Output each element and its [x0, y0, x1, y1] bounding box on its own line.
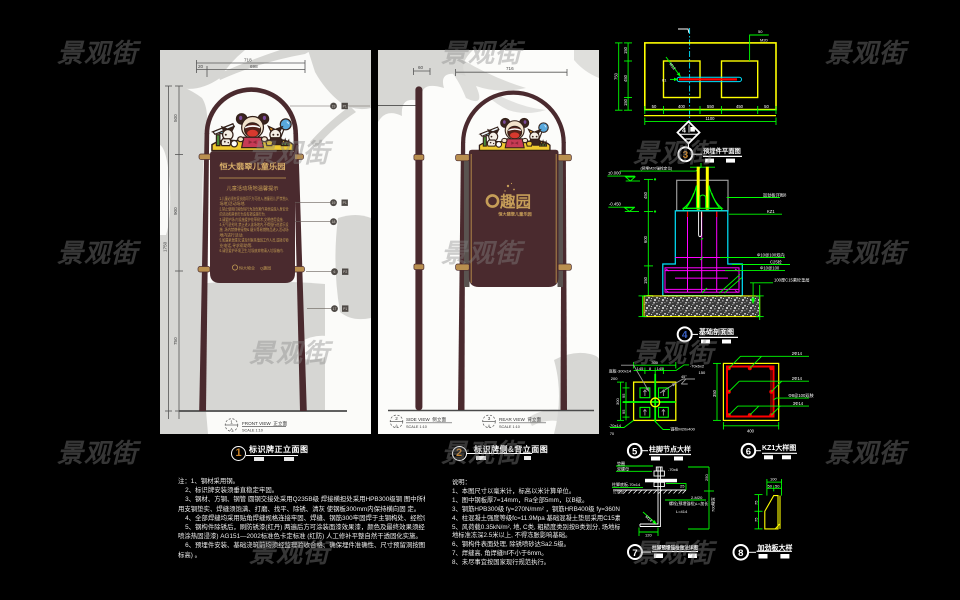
svg-text:50: 50 — [764, 104, 769, 109]
svg-text:45°: 45° — [681, 375, 687, 379]
svg-text:600: 600 — [643, 235, 648, 243]
svg-text:P1: P1 — [343, 201, 347, 205]
svg-text:1: 1 — [230, 420, 233, 425]
svg-text:20: 20 — [198, 64, 204, 69]
svg-text:2: 2 — [395, 416, 398, 421]
svg-text:3.请爱护场.内设施爱护花草树木,文明使用设施.: 3.请爱护场.内设施爱护花草树木,文明使用设施. — [220, 216, 284, 222]
svg-text:750: 750 — [614, 72, 619, 80]
svg-text:750: 750 — [173, 337, 178, 345]
svg-text:-70x6: -70x6 — [668, 467, 679, 472]
svg-text:50: 50 — [652, 104, 657, 109]
svg-text:150: 150 — [623, 98, 628, 106]
svg-text:70: 70 — [610, 431, 615, 436]
svg-text:450: 450 — [623, 74, 628, 82]
svg-text:19: 19 — [332, 201, 336, 205]
svg-text:95: 95 — [621, 409, 626, 414]
svg-text:SCALE 1:10: SCALE 1:10 — [406, 425, 427, 429]
svg-text:KZ1大样图: KZ1大样图 — [762, 443, 796, 452]
svg-text:3: 3 — [488, 416, 491, 421]
svg-text:双螺母: 双螺母 — [617, 465, 629, 471]
svg-text:17: 17 — [333, 307, 337, 311]
svg-text:2-M20: 2-M20 — [691, 495, 703, 500]
svg-text:Q趣园: Q趣园 — [260, 265, 271, 271]
svg-text:1100: 1100 — [705, 116, 715, 121]
svg-text:柱脚节点大样: 柱脚节点大样 — [649, 445, 691, 454]
svg-text:-0.450: -0.450 — [609, 202, 622, 207]
svg-text:698: 698 — [250, 64, 258, 69]
svg-text:锚栓M20x400: 锚栓M20x400 — [670, 426, 695, 432]
svg-text:趣园: 趣园 — [499, 192, 531, 211]
svg-text:350: 350 — [712, 389, 717, 397]
svg-text:900: 900 — [173, 207, 178, 215]
svg-text:718: 718 — [244, 58, 252, 63]
svg-text:KZ1: KZ1 — [767, 209, 775, 214]
svg-text:砼垫层: 砼垫层 — [613, 489, 625, 494]
svg-text:150: 150 — [643, 276, 648, 284]
svg-text:±0.000: ±0.000 — [608, 171, 621, 176]
svg-text:2Φ14: 2Φ14 — [792, 376, 803, 381]
svg-text:REAR VIEW 背立面: REAR VIEW 背立面 — [499, 416, 542, 423]
svg-text:4: 4 — [682, 330, 688, 341]
svg-text:L=414: L=414 — [676, 509, 688, 514]
svg-text:95: 95 — [621, 393, 626, 398]
svg-text:75: 75 — [754, 500, 759, 505]
svg-text:加劲板详图8: 加劲板详图8 — [763, 191, 787, 198]
svg-text:恒大翡翠儿童乐园: 恒大翡翠儿童乐园 — [498, 211, 532, 218]
svg-text:施 ,场内禁携带宠物& 烟头等易燃物品进入活动场: 施 ,场内禁携带宠物& 烟头等易燃物品进入活动场 — [220, 226, 289, 232]
svg-text:SIDE VIEW 侧立面: SIDE VIEW 侧立面 — [406, 416, 446, 423]
svg-text:8: 8 — [649, 366, 652, 371]
svg-text:700埋深: 700埋深 — [710, 497, 716, 512]
svg-text:5.如遇紧急情况,请及时联系值班工作人员,或拨打物: 5.如遇紧急情况,请及时联系值班工作人员,或拨打物 — [220, 237, 289, 243]
svg-text:A: A — [488, 423, 491, 428]
svg-text:500: 500 — [173, 114, 178, 122]
svg-text:(预埋M20锚栓定位): (预埋M20锚栓定位) — [641, 166, 673, 171]
svg-text:Φ10@100双向: Φ10@100双向 — [757, 251, 785, 258]
svg-text:SCALE 1:10: SCALE 1:10 — [242, 429, 263, 433]
svg-text:400: 400 — [747, 428, 755, 433]
svg-text:400: 400 — [678, 104, 686, 109]
svg-text:200: 200 — [611, 376, 618, 381]
svg-text:SCALE 1:10: SCALE 1:10 — [499, 425, 520, 429]
svg-text:-70x14: -70x14 — [609, 423, 622, 428]
svg-text:3Φ14: 3Φ14 — [793, 401, 804, 406]
svg-text:螺栓(预埋锚栓)L=加长: 螺栓(预埋锚栓)L=加长 — [669, 500, 708, 506]
svg-text:M14: M14 — [644, 514, 654, 523]
svg-text:M20: M20 — [760, 38, 769, 43]
svg-text:450: 450 — [736, 104, 744, 109]
svg-text:18: 18 — [332, 220, 336, 224]
svg-text:716: 716 — [506, 66, 514, 71]
svg-text:A: A — [230, 427, 233, 432]
svg-text:基础剖面图: 基础剖面图 — [698, 327, 734, 336]
svg-text:4: 4 — [682, 128, 686, 135]
svg-text:6.请您爱护环境卫生,垃圾废弃物请入垃圾箱内.: 6.请您爱护环境卫生,垃圾废弃物请入垃圾箱内. — [220, 247, 284, 253]
svg-text:FRONT VIEW 正立面: FRONT VIEW 正立面 — [242, 420, 287, 427]
svg-text:恒大翡翠儿童乐园: 恒大翡翠儿童乐园 — [220, 161, 287, 171]
svg-text:120: 120 — [645, 533, 652, 538]
svg-text:垫圈: 垫圈 — [617, 460, 625, 466]
svg-text:4.天气恶劣时,禁止进入该场地内,不得强行进游乐设: 4.天气恶劣时,禁止进入该场地内,不得强行进游乐设 — [220, 221, 289, 227]
svg-text:61: 61 — [662, 78, 667, 83]
svg-text:550: 550 — [707, 104, 715, 109]
svg-text:300: 300 — [615, 398, 620, 405]
svg-text:7: 7 — [632, 548, 637, 559]
svg-text:C25砼: C25砼 — [770, 258, 783, 264]
svg-text:业电话,寻求帮助等.: 业电话,寻求帮助等. — [220, 242, 253, 248]
svg-text:儿童活动场地温馨提示: 儿童活动场地温馨提示 — [227, 185, 279, 192]
svg-text:150: 150 — [623, 46, 628, 54]
svg-text:Φ10@100: Φ10@100 — [760, 265, 780, 270]
svg-text:145: 145 — [657, 366, 664, 371]
svg-text:柱脚预埋锚栓做法详图: 柱脚预埋锚栓做法详图 — [652, 544, 698, 552]
svg-text:-70x6x2: -70x6x2 — [690, 364, 705, 369]
svg-text:100: 100 — [770, 476, 777, 481]
svg-text:100厚C15素砼垫层: 100厚C15素砼垫层 — [774, 277, 810, 284]
svg-text:预埋件平面图: 预埋件平面图 — [703, 146, 741, 155]
svg-text:P2: P2 — [343, 270, 347, 274]
svg-text:恒大物业: 恒大物业 — [239, 265, 255, 271]
svg-text:19: 19 — [332, 104, 336, 108]
svg-text:加劲板大样: 加劲板大样 — [757, 543, 793, 552]
svg-text:8: 8 — [738, 548, 743, 559]
svg-text:柱脚底板-70x14: 柱脚底板-70x14 — [612, 481, 641, 487]
svg-text:2.禁止使用打闹危险行为及危害作其他设施人身安全: 2.禁止使用打闹危险行为及危害作其他设施人身安全 — [220, 205, 289, 211]
svg-text:3: 3 — [683, 150, 689, 161]
svg-text:1750: 1750 — [163, 241, 168, 252]
svg-text:P1: P1 — [343, 104, 347, 108]
svg-text:150: 150 — [699, 370, 706, 375]
svg-text:6: 6 — [334, 270, 336, 274]
svg-text:底板-300x14: 底板-300x14 — [609, 368, 632, 374]
svg-text:300: 300 — [651, 360, 658, 365]
svg-text:50: 50 — [758, 29, 763, 34]
svg-text:1.儿童必须在家长陪同下方可进入,普童班儿(严禁独入: 1.儿童必须在家长陪同下方可进入,普童班儿(严禁独入 — [220, 195, 289, 201]
svg-text:A: A — [395, 423, 398, 428]
svg-text:的活动和其他行为及有损设施行为.: 的活动和其他行为及有损设施行为. — [220, 211, 266, 217]
svg-text:2Φ14: 2Φ14 — [792, 351, 803, 356]
svg-text:75: 75 — [754, 517, 759, 522]
svg-text:P1: P1 — [343, 307, 347, 311]
svg-text:60: 60 — [418, 65, 424, 70]
svg-text:Φ8@100双肢: Φ8@100双肢 — [788, 392, 814, 399]
svg-text:场地)活动场地.: 场地)活动场地. — [220, 200, 246, 206]
svg-text:250: 250 — [704, 474, 709, 481]
svg-text:地内进行活动.: 地内进行活动. — [220, 231, 244, 237]
svg-text:5: 5 — [632, 446, 638, 457]
svg-text:25: 25 — [680, 484, 685, 489]
svg-text:50: 50 — [775, 484, 780, 489]
svg-text:145: 145 — [637, 366, 644, 371]
svg-text:50: 50 — [768, 484, 773, 489]
svg-text:450: 450 — [643, 191, 648, 199]
svg-text:6: 6 — [746, 446, 751, 457]
